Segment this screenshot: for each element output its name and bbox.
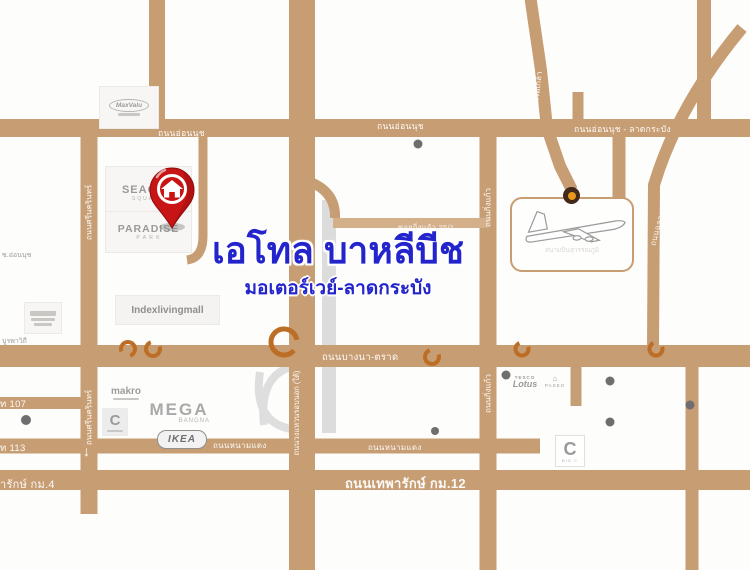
road-label-on-nut-ladkrabang: ถนนอ่อนนุช - ลาดกระบัง xyxy=(574,122,671,136)
project-title: เอโทล บาหลีบีช xyxy=(188,232,488,271)
road-label-burapha-withi: บูรพาวิถี xyxy=(2,336,27,347)
junction-dot xyxy=(414,140,423,149)
junction-dot xyxy=(606,377,615,386)
road-label-soi-on-nut: ซ.อ่อนนุช xyxy=(2,250,31,261)
ikea-logo-text: IKEA xyxy=(168,434,196,445)
road-label-bangna-trat: ถนนบางนา-ตราด xyxy=(322,350,398,365)
road-label-srinakarin-top: ถนนศรีนครินทร์ xyxy=(83,168,96,258)
paradise-logo-subtext: P A R K xyxy=(136,235,160,241)
road-label-nam-daeng-left: ถนนหนามแดง xyxy=(213,439,267,452)
maxvalu-logo-text: MaxValu xyxy=(109,99,149,112)
road-label-king-kaew-top: ถนนกิ่งแก้ว xyxy=(482,176,495,240)
airport-junction-center xyxy=(568,192,576,200)
paseo-logo: ⌂ PASEO xyxy=(541,372,569,390)
junction-dot xyxy=(21,415,31,425)
unknown-logo-line xyxy=(34,323,52,326)
big-c-east-caption: BIG C xyxy=(562,458,578,463)
mega-logo-subtext: BANGNA xyxy=(179,418,210,424)
unknown-mall-logo xyxy=(24,302,62,334)
junction-dot xyxy=(686,401,695,410)
road-label-thepharak-km4: ารักษ์ กม.4 xyxy=(0,475,55,493)
airplane-engine xyxy=(585,237,593,242)
project-title-block: เอโทล บาหลีบีช มอเตอร์เวย์-ลาดกระบัง xyxy=(188,232,488,303)
makro-logo-text: makro xyxy=(111,386,141,397)
ikea-logo: IKEA xyxy=(157,430,207,449)
road-label-sukhumvit-113: ท 113 xyxy=(0,441,26,456)
junction-dot xyxy=(431,427,439,435)
lotus-logo-text: Lotus xyxy=(513,380,538,389)
road-label-thepharak-km12: ถนนเทพารักษ์ กม.12 xyxy=(345,473,466,494)
project-subtitle: มอเตอร์เวย์-ลาดกระบัง xyxy=(188,273,488,303)
maxvalu-logo: MaxValu xyxy=(99,86,159,129)
big-c-west-letter: C xyxy=(110,412,121,429)
big-c-west-logo: C xyxy=(102,408,128,436)
airport-junction-circle xyxy=(563,187,580,204)
mega-logo-text: MEGA xyxy=(150,401,209,418)
paseo-roof-icon: ⌂ xyxy=(553,375,558,383)
makro-logo-tagline xyxy=(113,398,139,400)
airplane-tail xyxy=(527,211,547,232)
road-label-on-nut-left: ถนนอ่อนนุช xyxy=(158,126,205,140)
road-label-nam-daeng-mid: ถนนหนามแดง xyxy=(368,441,422,454)
house-door xyxy=(169,192,175,198)
airport-label: สนามบินสุวรรณภูมิ xyxy=(522,245,622,255)
road-label-king-kaew-bottom: ถนนกิ่งแก้ว xyxy=(482,362,495,426)
road-label-sukhumvit-107: ท 107 xyxy=(0,397,26,412)
big-c-east-logo: C BIG C xyxy=(555,435,585,467)
airplane-engine xyxy=(573,235,581,240)
unknown-logo-mark xyxy=(30,311,56,316)
big-c-east-letter: C xyxy=(564,440,577,458)
airport-box: สนามบินสุวรรณภูมิ xyxy=(510,197,634,272)
road-label-outer-ring: ถนนวงแหวนรอบนอก (ใต้) xyxy=(291,353,303,473)
srinakarin-direction-arrow: ↓ xyxy=(83,443,90,459)
unknown-logo-line xyxy=(31,318,55,321)
mega-bangna-logo: MEGA BANGNA xyxy=(148,396,210,428)
makro-logo: makro xyxy=(104,382,148,404)
road-label-on-nut-mid: ถนนอ่อนนุช xyxy=(377,119,424,133)
big-c-west-caption-bar xyxy=(107,430,123,432)
location-pin xyxy=(137,155,207,235)
maxvalu-logo-tagline xyxy=(118,113,140,116)
map-canvas: ถนนอ่อนนุช ถนนอ่อนนุช ถนนอ่อนนุช - ลาดกร… xyxy=(0,0,750,570)
tesco-lotus-logo: TESCO Lotus xyxy=(510,372,540,392)
paseo-logo-text: PASEO xyxy=(545,383,565,388)
index-logo-text: Indexlivingmall xyxy=(131,305,203,316)
junction-dot xyxy=(606,418,615,427)
